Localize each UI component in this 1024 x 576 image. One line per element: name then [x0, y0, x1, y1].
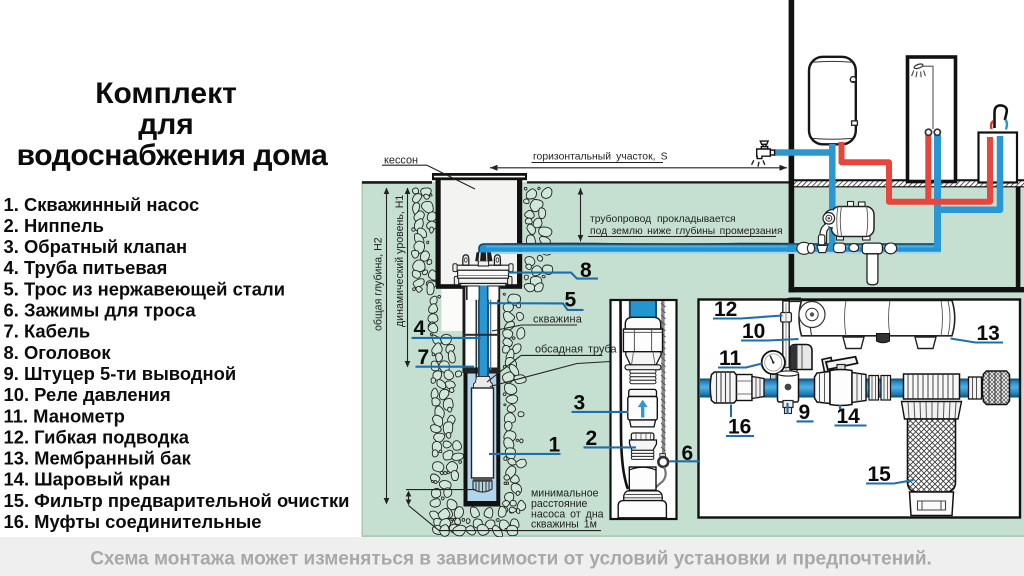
svg-text:15: 15 — [868, 463, 892, 486]
svg-text:5. Трос из нержавеющей стали: 5. Трос из нержавеющей стали — [4, 278, 286, 299]
svg-text:5: 5 — [565, 289, 577, 312]
svg-text:2. Ниппель: 2. Ниппель — [4, 215, 104, 236]
svg-text:9. Штуцер 5-ти выводной: 9. Штуцер 5-ти выводной — [4, 363, 237, 384]
svg-text:2: 2 — [586, 427, 598, 450]
svg-text:динамический уровень, Н1: динамический уровень, Н1 — [394, 195, 406, 327]
svg-text:7: 7 — [418, 346, 430, 369]
svg-text:14: 14 — [837, 405, 861, 428]
svg-text:15. Фильтр предварительной очи: 15. Фильтр предварительной очистки — [4, 490, 350, 511]
svg-text:Схема монтажа может изменяться: Схема монтажа может изменяться в зависим… — [90, 549, 932, 570]
svg-text:4. Труба питьевая: 4. Труба питьевая — [4, 257, 168, 278]
svg-text:11. Манометр: 11. Манометр — [4, 405, 125, 426]
svg-text:водоснабжения дома: водоснабжения дома — [17, 139, 329, 172]
svg-text:под землю ниже глубины промерз: под землю ниже глубины промерзания — [590, 225, 783, 237]
svg-text:общая глубина, Н2: общая глубина, Н2 — [373, 237, 385, 331]
svg-text:14. Шаровый кран: 14. Шаровый кран — [4, 469, 171, 490]
svg-text:8. Оголовок: 8. Оголовок — [4, 342, 112, 363]
svg-text:10. Реле давления: 10. Реле давления — [4, 384, 171, 405]
svg-text:9: 9 — [799, 401, 811, 424]
svg-text:Комплект: Комплект — [95, 77, 237, 110]
svg-text:8: 8 — [580, 259, 592, 282]
svg-text:10: 10 — [742, 320, 765, 343]
svg-text:13. Мембранный бак: 13. Мембранный бак — [4, 448, 192, 469]
svg-text:скважина: скважина — [533, 314, 583, 326]
svg-text:1: 1 — [549, 434, 561, 457]
svg-text:скважины 1м: скважины 1м — [531, 519, 597, 531]
svg-text:обсадная труба: обсадная труба — [535, 344, 618, 356]
svg-text:6: 6 — [682, 442, 694, 465]
svg-text:12: 12 — [714, 298, 737, 321]
svg-text:горизонтальный участок, S: горизонтальный участок, S — [533, 152, 668, 163]
svg-text:12. Гибкая подводка: 12. Гибкая подводка — [4, 426, 190, 447]
svg-text:1. Скважинный насос: 1. Скважинный насос — [4, 194, 200, 215]
svg-text:3. Обратный клапан: 3. Обратный клапан — [4, 236, 188, 257]
svg-text:13: 13 — [977, 322, 1000, 345]
svg-text:6. Зажимы для троса: 6. Зажимы для троса — [4, 300, 197, 321]
svg-text:7. Кабель: 7. Кабель — [4, 321, 91, 342]
svg-text:4: 4 — [414, 317, 426, 340]
svg-text:трубопровод прокладывается: трубопровод прокладывается — [590, 213, 736, 225]
svg-text:для: для — [138, 108, 194, 141]
svg-text:16. Муфты соединительные: 16. Муфты соединительные — [4, 511, 262, 532]
svg-text:16: 16 — [728, 416, 751, 439]
svg-text:3: 3 — [574, 392, 586, 415]
svg-text:11: 11 — [719, 347, 742, 370]
